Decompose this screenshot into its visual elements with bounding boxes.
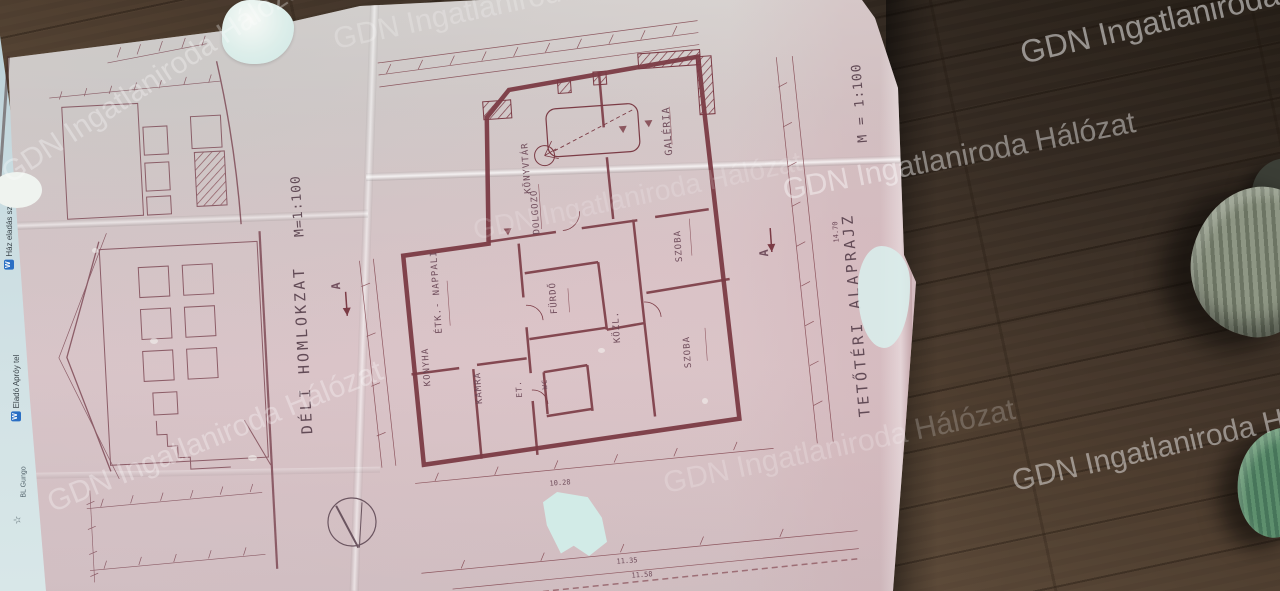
room-label-szoba-lower: SZOBA [682,336,694,369]
room-label-furdo: FÜRDŐ [548,282,560,315]
room-label-wc: WC [541,379,550,390]
tab-title: Eladó Apróy tel [12,355,21,409]
section-marker-a: A [329,282,343,290]
dimension-label: 10.28 [549,478,571,487]
room-label-kozl: KÖZL. [611,311,623,344]
north-arrow-symbol [327,497,378,549]
paper-speck [150,338,158,344]
section-marker-a: A [757,249,771,257]
paper-speck [248,455,257,461]
paper-speck [92,248,98,253]
address-bar-text: BL Gungo [21,466,28,497]
browser-tab[interactable]: W Ház eladás sz [4,206,14,269]
room-label-szoba-upper: SZOBA [673,230,685,263]
room-label-et: ET. [514,380,524,398]
dimension-label: 14.70 [831,221,840,243]
dimension-label: 11.58 [631,570,653,579]
room-label-kamra: KAMRA [473,372,485,405]
tab-title: Ház eladás sz [5,206,14,256]
photo-of-floor-plan: W Eladó Apróy tel W Ház eladás sz BL Gun… [0,0,1280,591]
elevation-drawing [42,33,277,583]
paper-speck [702,398,708,404]
dimension-label: 11.35 [616,556,638,565]
paper-speck [598,348,605,353]
browser-tab[interactable]: W Eladó Apróy tel [11,355,21,422]
tab-favicon-icon: W [4,260,14,270]
bookmark-star-icon[interactable]: ☆ [13,516,24,525]
tab-favicon-icon: W [11,411,21,421]
